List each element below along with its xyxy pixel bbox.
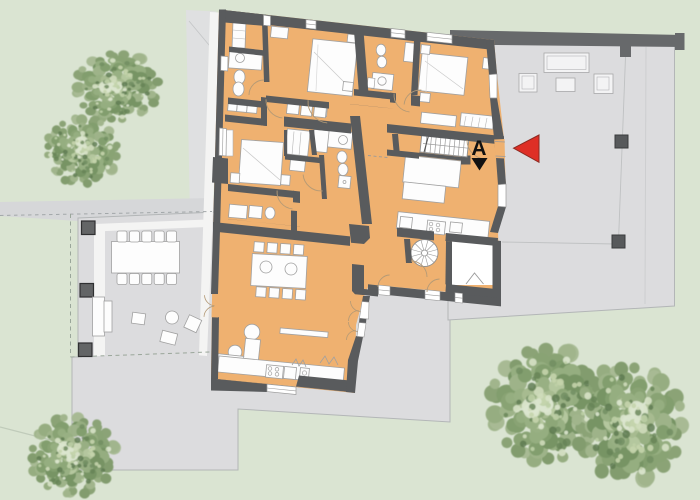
svg-text:A: A [471,137,486,160]
